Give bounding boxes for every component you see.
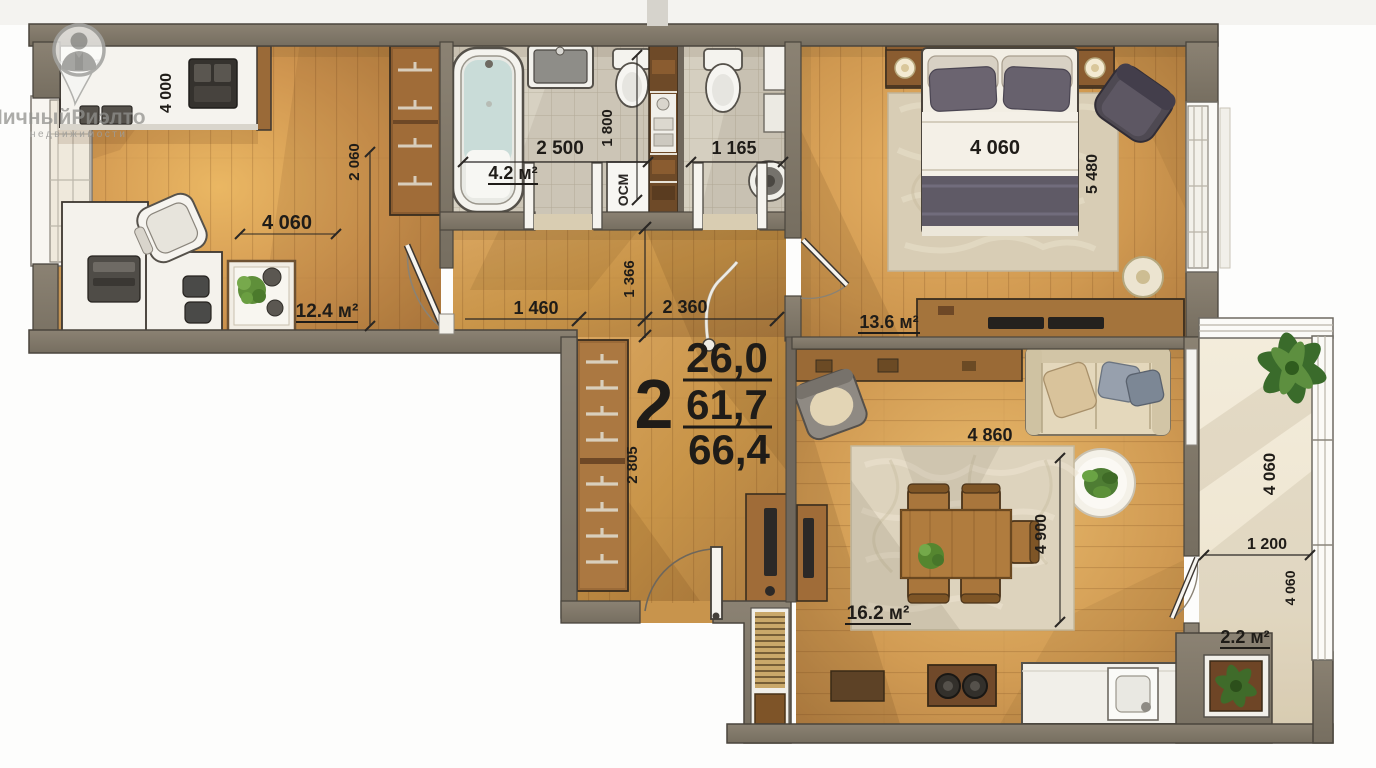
svg-text:2: 2 — [635, 365, 674, 443]
svg-text:4.2 м²: 4.2 м² — [488, 163, 537, 183]
svg-text:ЛичныйРиэлто: ЛичныйРиэлто — [0, 106, 146, 129]
svg-text:1 366: 1 366 — [621, 260, 638, 298]
svg-text:4 000: 4 000 — [158, 73, 175, 113]
svg-text:26,0: 26,0 — [686, 334, 768, 381]
svg-text:2 360: 2 360 — [662, 297, 707, 317]
svg-text:ОСМ: ОСМ — [615, 174, 631, 206]
svg-text:16.2 м²: 16.2 м² — [847, 603, 910, 624]
svg-text:4 060: 4 060 — [262, 212, 312, 234]
svg-text:4 900: 4 900 — [1033, 514, 1050, 554]
svg-text:2 500: 2 500 — [536, 138, 584, 159]
svg-text:66,4: 66,4 — [688, 426, 770, 473]
svg-text:1 165: 1 165 — [711, 138, 756, 158]
svg-text:1 200: 1 200 — [1247, 536, 1287, 553]
svg-text:1 460: 1 460 — [513, 298, 558, 318]
svg-text:2 805: 2 805 — [624, 446, 641, 484]
svg-text:61,7: 61,7 — [686, 381, 768, 428]
svg-text:1 800: 1 800 — [599, 109, 616, 147]
svg-text:4 060: 4 060 — [1260, 453, 1279, 496]
svg-text:недвижимости: недвижимости — [30, 129, 127, 140]
svg-text:4 060: 4 060 — [970, 137, 1020, 159]
svg-text:13.6 м²: 13.6 м² — [859, 312, 918, 332]
svg-text:4 860: 4 860 — [967, 425, 1012, 445]
svg-text:2 060: 2 060 — [346, 143, 363, 181]
svg-text:5 480: 5 480 — [1084, 154, 1101, 194]
svg-text:4 060: 4 060 — [1282, 570, 1298, 605]
svg-text:12.4 м²: 12.4 м² — [296, 301, 359, 322]
svg-text:2.2 м²: 2.2 м² — [1220, 627, 1269, 647]
